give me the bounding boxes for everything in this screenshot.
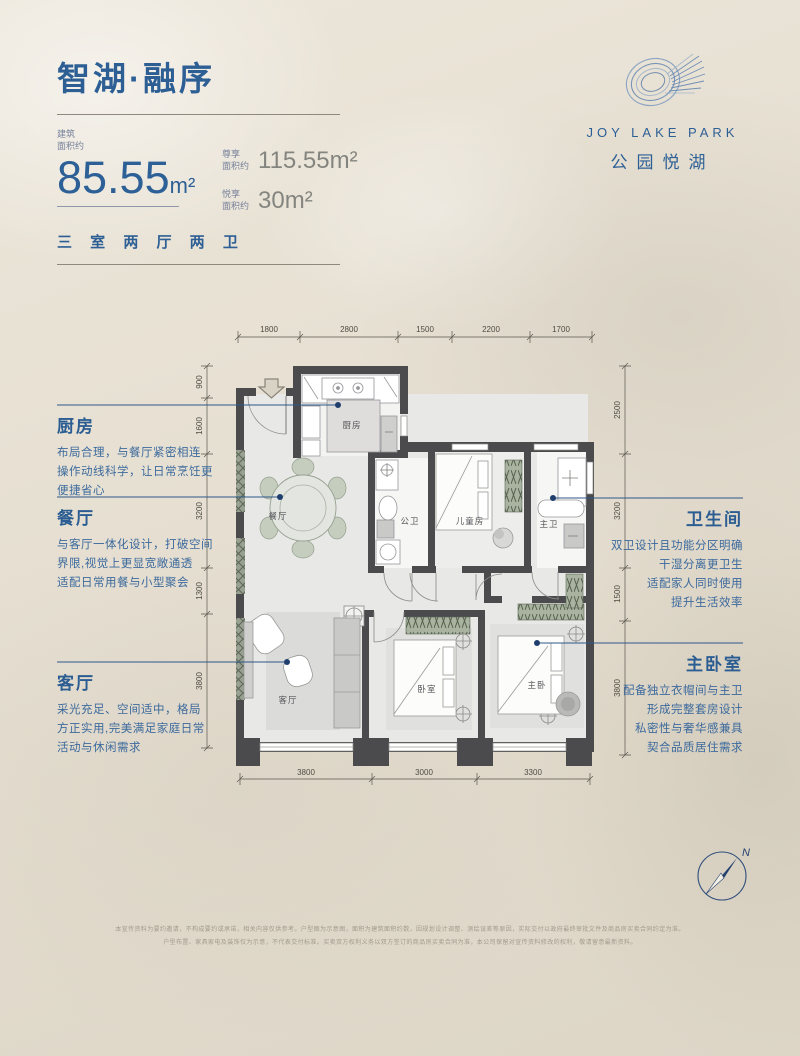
room-label-kids: 儿童房 [456, 516, 485, 526]
room-label-bedroom: 卧室 [417, 684, 436, 694]
room-label-dining: 餐厅 [268, 511, 287, 521]
annotation-dining: 餐厅 与客厅一体化设计，打破空间 界限,视觉上更显宽敞通透 适配日常用餐与小型聚… [57, 504, 267, 593]
room-label-living: 客厅 [278, 695, 297, 705]
compass-icon: N [698, 847, 750, 900]
compass-north-label: N [742, 847, 750, 859]
annotation-living: 客厅 采光充足、空间适中，格局 方正实用,完美满足家庭日常 活动与休闲需求 [57, 669, 267, 758]
svg-text:1500: 1500 [416, 325, 434, 334]
disclaimer-line: 户型布置、家具家电及装饰仅为示意，不代表交付标准。买卖双方权利义务以双方签订的商… [40, 937, 760, 950]
guest-bath-fixtures [376, 460, 400, 564]
svg-text:3800: 3800 [297, 768, 315, 777]
svg-text:2500: 2500 [613, 401, 622, 419]
annotation-master-bedroom: 主卧室 配备独立衣帽间与主卫 形成完整套房设计 私密性与奢华感兼具 契合品质居住… [491, 650, 743, 758]
disclaimer: 本宣传资料为要约邀请，不构成要约或承诺，相关内容仅供参考。户型图为示意图，面积为… [40, 924, 760, 949]
room-label-kitchen: 厨房 [342, 420, 361, 430]
svg-text:2200: 2200 [482, 325, 500, 334]
floorplan-poster-page: 智湖·融序 建筑 面积约 85.55m² 尊享 面积约 115.55m² [0, 0, 800, 1056]
annotation-bathroom: 卫生间 双卫设计且功能分区明确 干湿分离更卫生 适配家人同时使用 提升生活效率 [491, 505, 743, 613]
disclaimer-line: 本宣传资料为要约邀请，不构成要约或承诺，相关内容仅供参考。户型图为示意图，面积为… [40, 924, 760, 937]
svg-text:3300: 3300 [524, 768, 542, 777]
svg-text:900: 900 [195, 375, 204, 389]
bedroom-furniture [394, 640, 456, 716]
svg-text:1800: 1800 [260, 325, 278, 334]
annotation-kitchen: 厨房 布局合理，与餐厅紧密相连 操作动线科学，让日常烹饪更 便捷省心 [57, 412, 267, 501]
svg-text:1700: 1700 [552, 325, 570, 334]
room-label-guest-bath: 公卫 [400, 516, 419, 526]
svg-text:3000: 3000 [415, 768, 433, 777]
svg-text:2800: 2800 [340, 325, 358, 334]
